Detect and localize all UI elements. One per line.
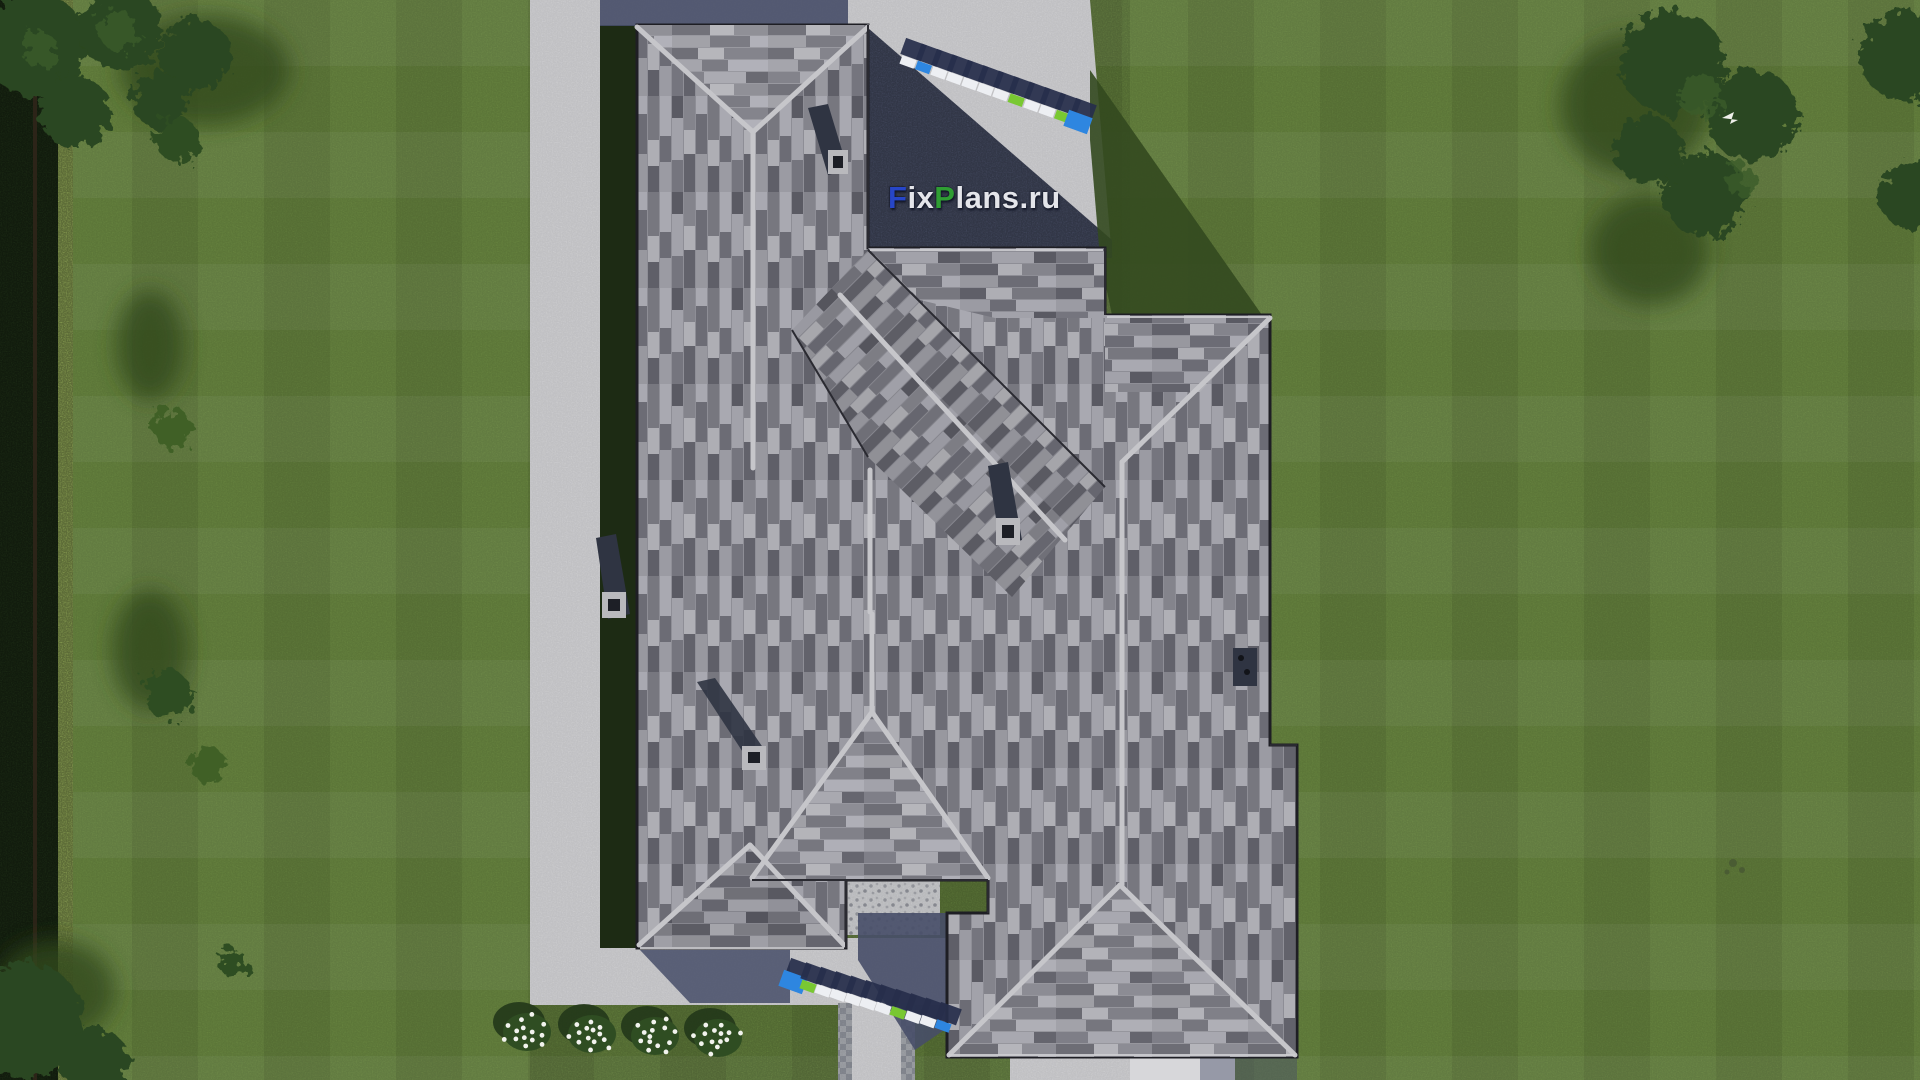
watermark-segment-1: ix <box>907 180 934 215</box>
foundation-hedge-strip <box>600 25 638 948</box>
watermark-segment-3: lans.ru <box>955 180 1060 215</box>
render-canvas <box>0 0 1920 1080</box>
aerial-house-render: FixPlans.ru <box>0 0 1920 1080</box>
roof-vent <box>1233 648 1257 686</box>
left-hedge-border <box>0 0 73 1080</box>
bush <box>156 118 200 162</box>
watermark-segment-2: P <box>934 180 955 215</box>
fence-line <box>33 0 37 1080</box>
bush <box>152 408 192 448</box>
bush <box>190 747 226 783</box>
shadow-top-sliver <box>600 0 848 26</box>
watermark-segment-0: F <box>888 180 907 215</box>
bush <box>144 671 192 719</box>
watermark-fixplans: FixPlans.ru <box>888 180 1098 220</box>
bush <box>218 948 246 976</box>
